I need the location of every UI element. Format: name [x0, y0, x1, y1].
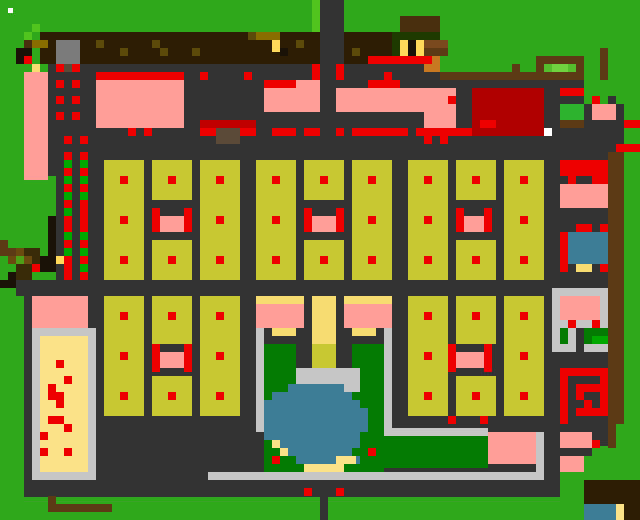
map-canvas[interactable]: [0, 0, 640, 520]
palace-map-screen: [0, 0, 640, 520]
